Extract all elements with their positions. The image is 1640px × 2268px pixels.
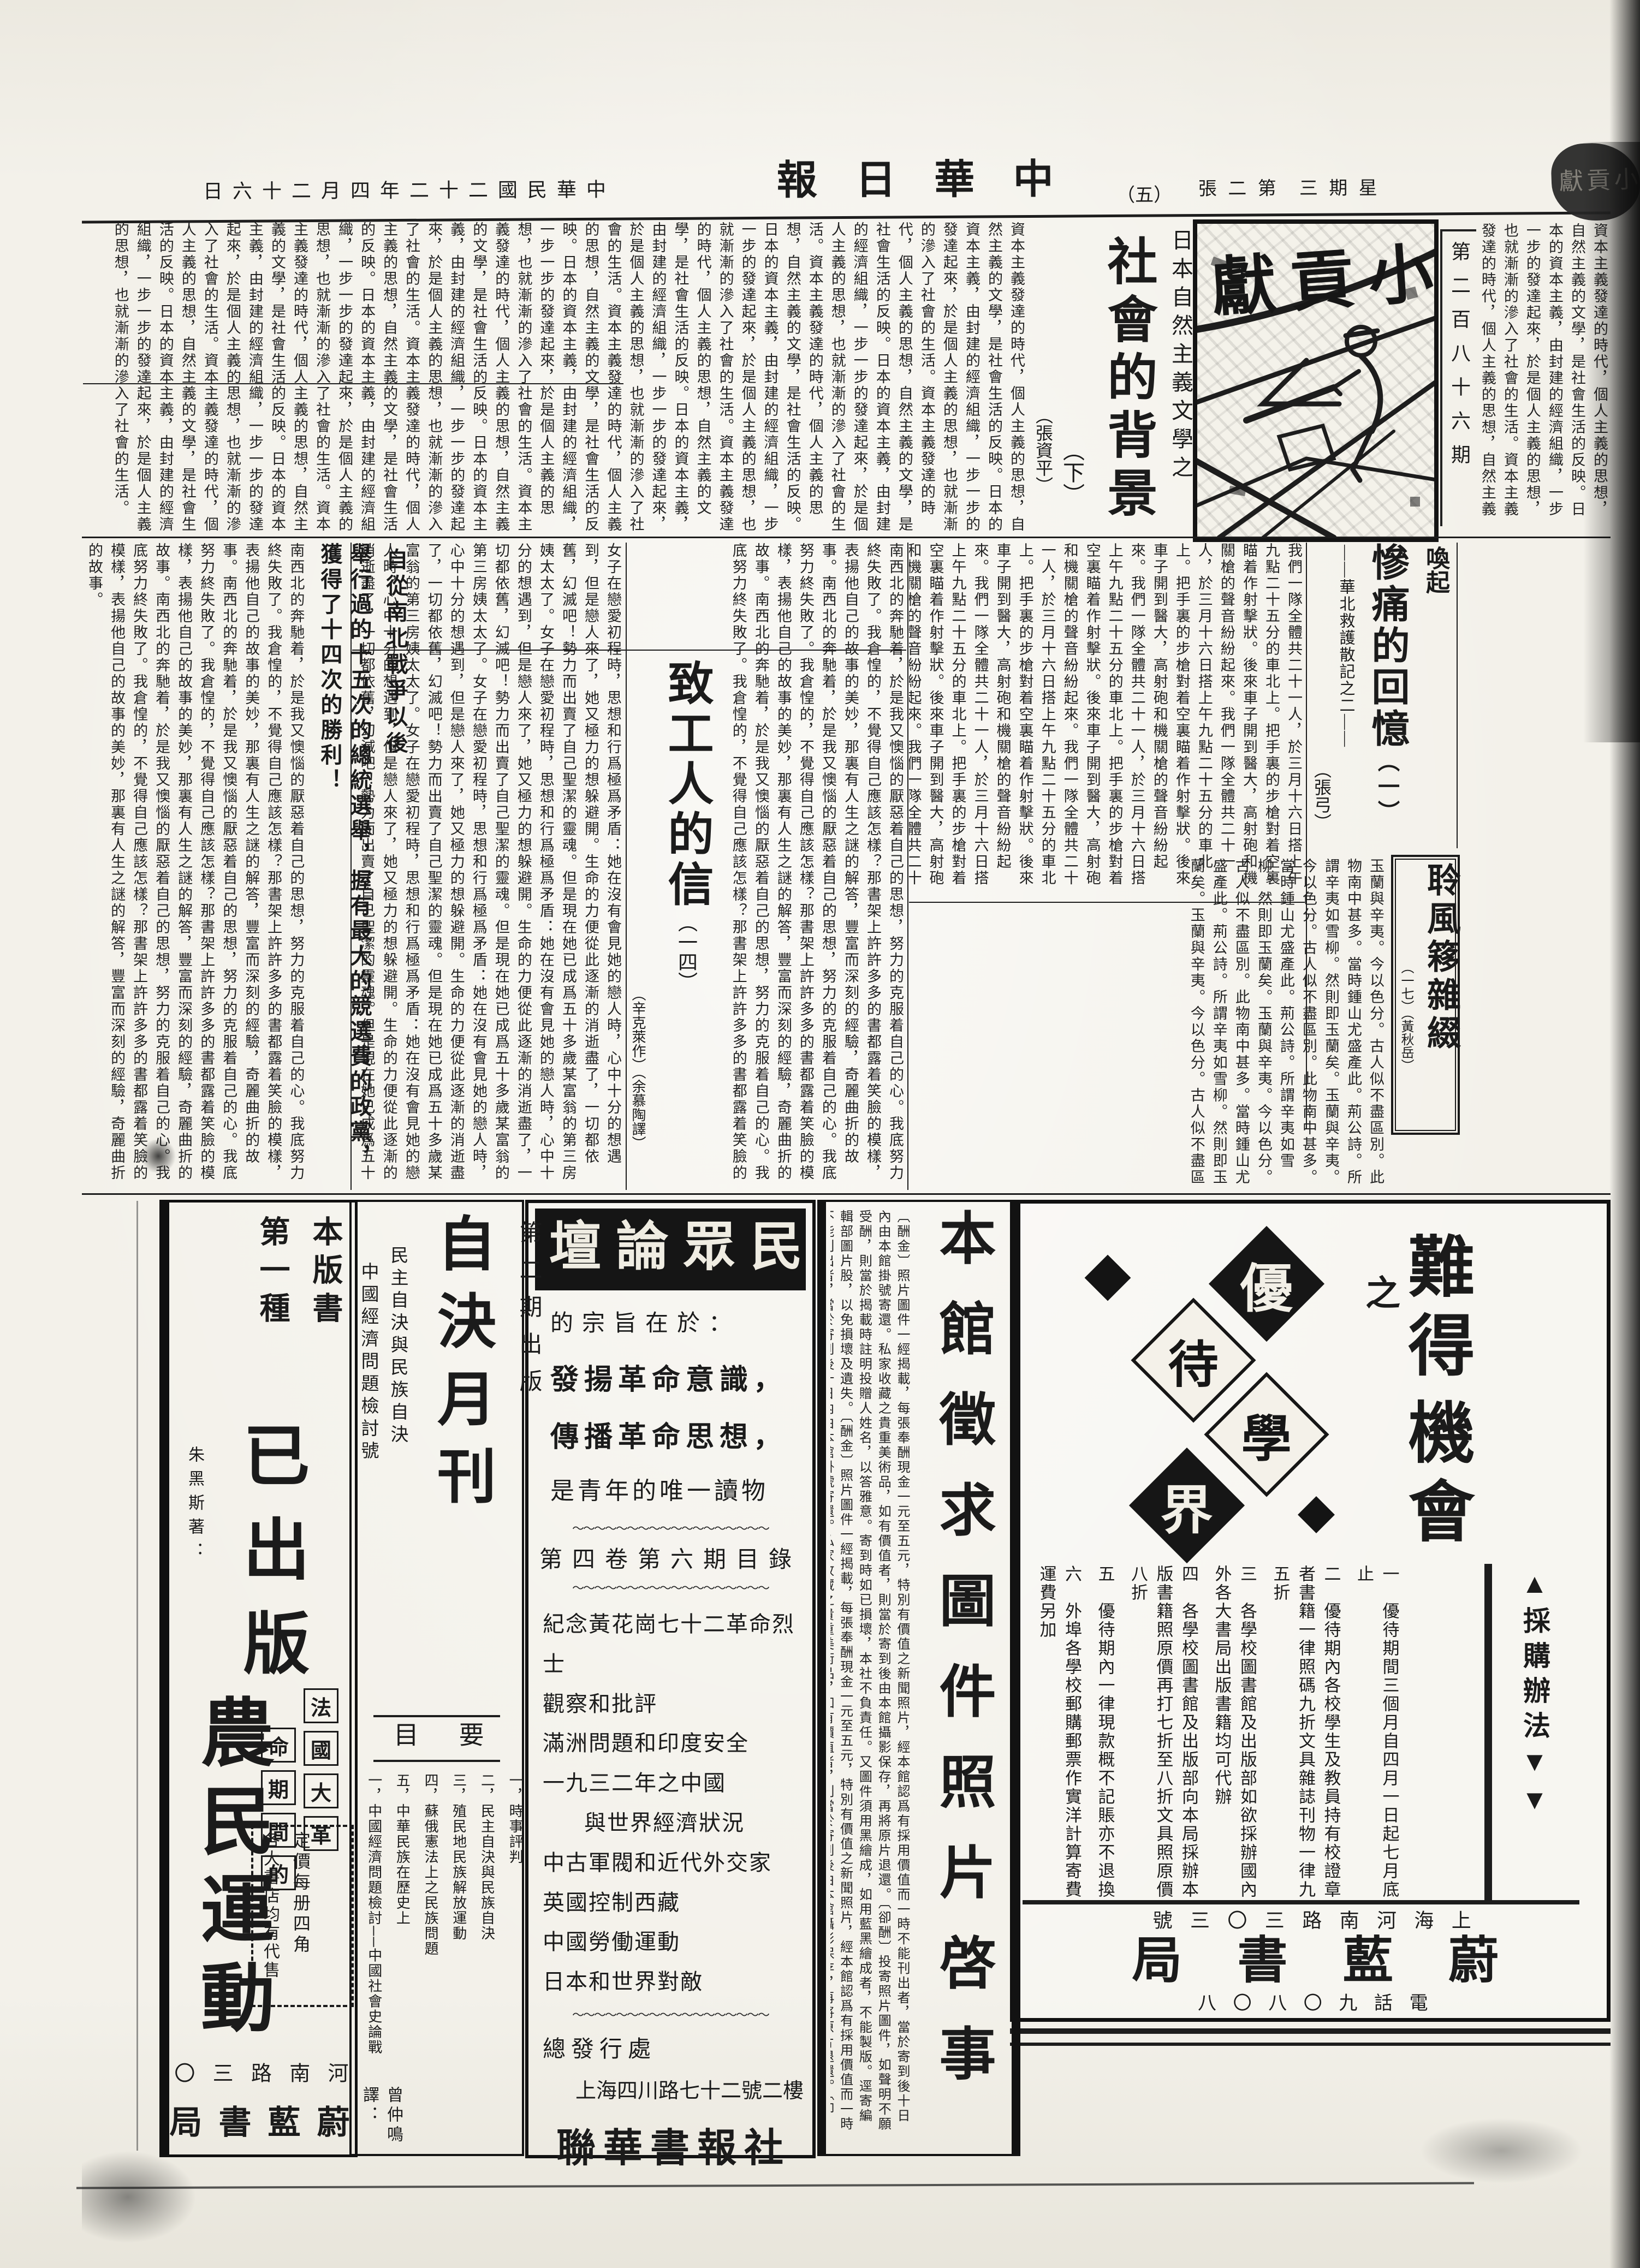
article-memories-title: 慘痛的回憶（一） <box>1359 543 1415 848</box>
rule-above-letter <box>352 650 906 651</box>
zijue-sub1: 民主自決與民族自決 <box>384 1213 411 1704</box>
newspaper-page: 中華民國二十二年四月二十六日 中華日報 （五） 第二張 星期三 小貢獻 <box>0 0 1640 2268</box>
article-memories-title-text: 慘痛的回憶 <box>1366 543 1408 750</box>
photo-notice-body: 〔酬金〕照片圖件一經揭載，每張奉酬現金一元至五元，特別有價值之新聞照片，經本館認… <box>830 1210 911 2138</box>
issue-strip: 第二百八十六期 <box>1440 229 1476 526</box>
weilan-address: 上海河南路三〇三號 <box>1142 1910 1478 1933</box>
scan-edge-right <box>1609 0 1640 2268</box>
lingfeng-part-author: （一七）（黃秋岳） <box>1397 862 1416 1138</box>
lingfeng-body-text: 玉蘭與辛夷。今以色分。古人似不盡區別。此物南中甚多。當時鍾山尤盛產此。荊公詩。所… <box>1190 858 1387 1190</box>
weilan-clause-5: 五 優待期內一律現款概不記賬亦不退換 <box>1092 1565 1118 1904</box>
forum-banner: 民眾論壇 <box>535 1209 806 1290</box>
nongmin-price-box: 定價每册四角 各大書店均有代售 <box>251 1825 354 2007</box>
ad-weilan-offer: 難得 之 機會 優 待 學 界 ▲採購辦法▼▼ <box>1010 1200 1611 2022</box>
corner-label: 小貢獻 <box>1554 166 1638 197</box>
nongmin-price: 定價每册四角 <box>288 1831 313 2001</box>
nongmin-series-1: 本版書 <box>303 1216 347 1412</box>
vrule-2 <box>626 543 627 1190</box>
article-memories-subtitle: ——華北救護散記之二—— <box>1334 543 1357 848</box>
letter-emphasis-1: 自從南北戰爭以後 <box>379 543 411 1190</box>
article-nature-kicker: 日本自然主義文學之 <box>1164 221 1196 535</box>
forum-item-1: 紀念黃花崗七十二革命烈士 <box>543 1605 805 1684</box>
forum-wavy-3: 〜〜〜〜〜〜〜〜〜〜〜〜〜〜〜〜〜〜 <box>528 2005 812 2023</box>
weilan-logo: 優 待 學 界 <box>1079 1229 1352 1578</box>
forum-item-2: 觀察和批評 <box>543 1684 805 1724</box>
weilan-phone: 電話九〇八〇八 <box>1187 1993 1434 2015</box>
zijue-item-5: 五，中華民族在歷史上 <box>392 1773 413 2079</box>
masthead-date: 中華民國二十二年四月二十六日 <box>197 179 609 204</box>
forum-item-5: 與世界經濟狀況 <box>543 1803 805 1843</box>
forum-intro-3: 是青年的唯一讀物 <box>550 1471 798 1506</box>
ad-nongmin: 本版書 第一種 曾仲鳴譯： 已出版 朱黑斯著： 法 國 大 革 命 期 間 <box>159 1200 358 2157</box>
article-nature-title-block: 日本自然主義文學之 社會的背景 （下） （張資平） <box>1031 221 1190 535</box>
weilan-clause-4: 四 各學校圖書館及出版部向本局採辦本版書籍照原價再打七折至八折文具照原價八折 <box>1125 1565 1202 1904</box>
letter-emphasis-fill-text: 南西北的奔馳着，於是我又懊惱的厭惡着自己的思想，努力的克服着自己的心。我底努力終… <box>83 543 307 1190</box>
vrule-3 <box>350 543 352 1190</box>
weilan-clause-6: 六 外埠各學校郵購郵票作實洋計算寄費運費另加 <box>1033 1565 1084 1904</box>
zijue-item-2: 二，民主自決與民族自決 <box>477 1773 497 2079</box>
weilan-clause-1: 一 優待期間三個月自四月一日起七月底止 <box>1351 1565 1402 1904</box>
nongmin-status: 已出版 <box>222 1421 318 1703</box>
section-banner: 小貢獻 <box>1193 219 1439 542</box>
article-nature-title: 社會的背景 <box>1092 221 1164 535</box>
ad-zijue: 第二期出版 自決月刊 民主自決與民族自決 中國經濟問題檢討號 要目 一，時事評判… <box>349 1200 524 2156</box>
weilan-logo-char-xue: 學 <box>1241 1398 1292 1471</box>
forum-item-7: 英國控制西藏 <box>543 1883 805 1923</box>
weilan-clause-2: 二 優待期內各校學生及教員持有校證章者書籍一律照碼九折文具雜誌刊物一律九五折 <box>1267 1565 1344 1904</box>
article-nature-body-text: 資本主義發達的時代，個人主義的思想，自然主義的文學，是社會生活的反映。日本的資本… <box>83 222 1027 533</box>
article-memories-author: （張弓） <box>1309 543 1334 848</box>
sheet-label: 第二張 <box>1190 178 1279 201</box>
letter-title-block: 致工人的信 （一四） （辛克萊作）（余慕陶譯） <box>628 659 732 1190</box>
weilan-method: ▲採購辦法▼▼ <box>1515 1568 1554 1912</box>
forum-intro-1: 發揚革命意識， <box>550 1356 798 1397</box>
vrule-5 <box>1457 543 1458 848</box>
zijue-issue: 第二期出版 <box>512 1213 545 1704</box>
issue-number: 第二百八十六期 <box>1445 231 1473 526</box>
rule-subdivision-a <box>83 383 623 384</box>
weekday-label: 星期三 <box>1291 178 1380 200</box>
zijue-translator-note: 曾仲鳴譯： <box>357 2086 405 2146</box>
lingfeng-title: 聆風簃雜綴 <box>1416 862 1465 1138</box>
forum-item-9: 日本和世界對敵 <box>543 1962 805 2002</box>
vrule-4 <box>1306 543 1307 1129</box>
rule-under-top-row <box>82 537 1611 538</box>
forum-banner-text: 民眾論壇 <box>536 1218 805 1280</box>
forum-publisher-addr: 上海四川路七十二號二樓 <box>543 2074 805 2104</box>
paper-title: 中華日報 <box>753 157 1069 206</box>
article-memories-body-text: 我們一隊全體共二十一人，於三月十六日搭上午九點二十五分的車北上。把手裏的步槍對着… <box>909 543 1305 898</box>
nongmin-sellers: 各大書店均有代售 <box>258 1831 282 2001</box>
forum-publisher-label: 總發行處 <box>543 2031 805 2064</box>
scan-blot-bottomleft <box>82 2151 197 2243</box>
article-nature-opening-columns: 資本主義發達的時代，個人主義的思想，自然主義的文學，是社會生活的反映。日本的資本… <box>1481 223 1611 532</box>
ad-forum: 民眾論壇 的宗旨在於： 發揚革命意識， 傳播革命思想， 是青年的唯一讀物 〜〜〜… <box>525 1200 816 2158</box>
nongmin-addr: 河南路三〇三號 <box>169 2062 355 2087</box>
forum-item-4: 一九三二年之中國 <box>543 1764 805 1803</box>
forum-publisher-name: 聯華書報社 <box>556 2116 791 2173</box>
letter-emphasis-block: 自從南北戰爭以後 舉行過的十五次的總統選舉，握有最大的競選費的政黨，獲得了十四次… <box>83 543 349 1190</box>
article-nature-author: （張資平） <box>1031 221 1056 535</box>
forum-intro-0: 的宗旨在於： <box>550 1305 798 1338</box>
forum-item-3: 滿洲問題和印度安全 <box>543 1724 805 1764</box>
weilan-bottom-rule-2 <box>1010 2043 1611 2046</box>
forum-wavy-2: 〜〜〜〜〜〜〜〜〜〜〜〜〜〜〜〜〜〜 <box>528 1579 812 1596</box>
forum-item-8: 中國勞働運動 <box>543 1922 805 1962</box>
scan-edge-left-line <box>136 1201 138 2151</box>
weilan-contact-topline <box>1023 1900 1579 1904</box>
scan-bottom-line <box>76 2182 1474 2189</box>
zijue-item-6: 一，中國經濟問題檢討──中國社會史論戰 <box>364 1773 384 2079</box>
lingfeng-part: （一七） <box>1399 961 1413 1013</box>
photo-notice-title: 本館徵求圖件照片啓事 <box>920 1209 1003 2136</box>
weilan-logo-char-jie: 界 <box>1161 1468 1213 1544</box>
zijue-item-1: 一，時事評判 <box>504 1773 525 2079</box>
photo-notice-body-text: 〔酬金〕照片圖件一經揭載，每張奉酬現金一元至五元，特別有價值之新聞照片，經本館認… <box>830 1210 911 2138</box>
zijue-title: 自決月刊 <box>418 1213 503 1704</box>
vrule-1 <box>907 543 908 1190</box>
zijue-toc: 一，時事評判 二，民主自決與民族自決 三，殖民地民族解放運動 四，蘇俄憲法上之民… <box>356 1773 515 2079</box>
nongmin-box-da: 大 <box>304 1773 338 1808</box>
zijue-toc-label: 要目 <box>371 1722 502 1751</box>
letter-body-right: 南西北的奔馳着，於是我又懊惱的厭惡着自己的思想，努力的克服着自己的心。我底努力終… <box>732 543 906 1190</box>
nongmin-box-guo: 國 <box>304 1731 338 1766</box>
lingfeng-body: 玉蘭與辛夷。今以色分。古人似不盡區別。此物南中甚多。當時鍾山尤盛產此。荊公詩。所… <box>1190 858 1387 1190</box>
letter-title-col: 致工人的信 （一四） <box>653 659 720 1190</box>
zijue-sub2: 中國經濟問題檢討號 <box>355 1213 381 1704</box>
article-memories-header: 喚起 慘痛的回憶（一） ——華北救護散記之二—— （張弓） <box>1309 543 1445 848</box>
letter-authors: （辛克萊作）（余慕陶譯） <box>628 659 648 1190</box>
letter-translator: （余慕陶譯） <box>630 1072 646 1150</box>
forum-intro-2: 傳播革命思想， <box>550 1414 798 1455</box>
weilan-name: 蔚藍書局 <box>1100 1933 1522 1993</box>
letter-emphasis-2: 舉行過的十五次的總統選舉，握有最大的競選費的政黨，獲得了十四次的勝利！ <box>314 543 373 1190</box>
weilan-logo-char-dai: 待 <box>1168 1324 1219 1396</box>
nongmin-box-fa: 法 <box>304 1688 338 1723</box>
forum-wavy-1: 〜〜〜〜〜〜〜〜〜〜〜〜〜〜〜〜〜〜 <box>528 1519 812 1537</box>
article-memories-part: （一） <box>1375 750 1399 825</box>
lingfeng-author: （黃秋岳） <box>1399 1013 1413 1072</box>
masthead: 中華民國二十二年四月二十六日 中華日報 （五） 第二張 星期三 <box>82 158 1611 219</box>
zijue-rule-1 <box>373 1715 500 1717</box>
ad-photo-notice: 本館徵求圖件照片啓事 〔酬金〕照片圖件一經揭載，每張奉酬現金一元至五元，特別有價… <box>817 1200 1020 2156</box>
weilan-divider-bar <box>1484 1564 1492 1902</box>
article-memories-body: 我們一隊全體共二十一人，於三月十六日搭上午九點二十五分的車北上。把手裏的步槍對着… <box>909 543 1305 898</box>
lingfeng-title-box: 聆風簃雜綴 （一七）（黃秋岳） <box>1391 855 1460 1135</box>
zijue-item-4: 四，蘇俄憲法上之民族問題 <box>420 1773 441 2079</box>
weilan-clauses: 一 優待期間三個月自四月一日起七月底止 二 優待期內各校學生及教員持有校證章者書… <box>1026 1565 1473 1904</box>
weilan-headline-nande: 難得 <box>1387 1232 1483 1389</box>
article-nature-body: 資本主義發達的時代，個人主義的思想，自然主義的文學，是社會生活的反映。日本的資本… <box>83 222 1027 533</box>
weilan-bottom-rule-1 <box>1010 2028 1611 2034</box>
zijue-item-3: 三，殖民地民族解放運動 <box>448 1773 469 2079</box>
page-number: （五） <box>1116 180 1172 206</box>
letter-part: （一四） <box>675 913 697 991</box>
nongmin-series-2: 第一種 <box>250 1216 294 1412</box>
weilan-logo-tile-4: 界 <box>1129 1448 1245 1563</box>
rule-ads-top <box>82 1193 1611 1195</box>
weilan-logo-char-you: 優 <box>1240 1246 1293 1322</box>
letter-author: （辛克萊作） <box>630 987 646 1072</box>
weilan-logo-tile-1: 優 <box>1209 1226 1324 1342</box>
nongmin-author: 朱黑斯著： <box>182 1446 206 1566</box>
scan-blot-bottomright <box>1419 2118 1583 2183</box>
weilan-headline-zhi: 之 <box>1354 1275 1405 1309</box>
forum-item-6: 中古軍閥和近代外交家 <box>543 1843 805 1883</box>
zijue-top: 第二期出版 自決月刊 民主自決與民族自決 中國經濟問題檢討號 <box>355 1213 516 1704</box>
zijue-rule-2 <box>373 1760 500 1762</box>
article-nature-opening-text: 資本主義發達的時代，個人主義的思想，自然主義的文學，是社會生活的反映。日本的資本… <box>1481 223 1611 532</box>
article-nature-part: （下） <box>1056 221 1088 535</box>
article-memories-kicker: 喚起 <box>1418 543 1453 848</box>
letter-title: 致工人的信 <box>661 659 712 910</box>
nongmin-pub: 蔚藍書局謹啓 <box>169 2105 355 2144</box>
weilan-clause-3: 三 各學校圖書館及出版部如欲採辦國內外各大書局出版書籍均可代辦 <box>1209 1565 1259 1904</box>
forum-toc-header: 第四卷第六期目錄 <box>539 1541 801 1574</box>
weilan-headline-jihui: 機會 <box>1387 1398 1483 1555</box>
letter-body-right-text: 南西北的奔馳着，於是我又懊惱的厭惡着自己的思想，努力的克服着自己的心。我底努力終… <box>732 543 906 1190</box>
